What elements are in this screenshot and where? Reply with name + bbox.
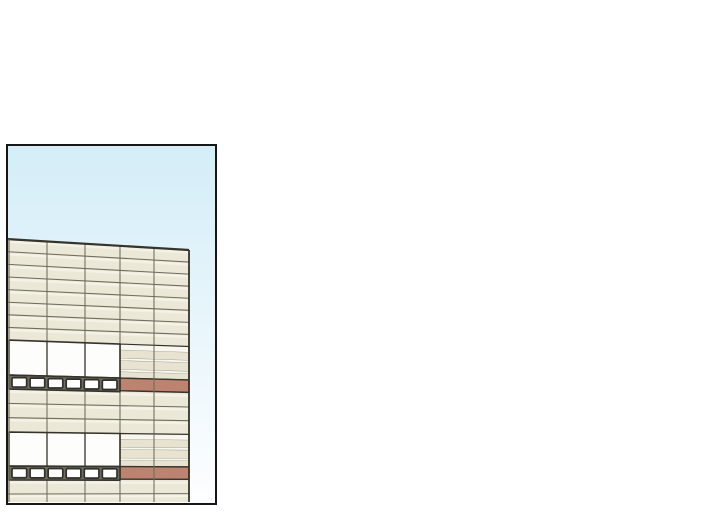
building-illustration bbox=[8, 146, 214, 502]
webtoon-page bbox=[0, 0, 720, 524]
comic-panel bbox=[6, 144, 217, 505]
